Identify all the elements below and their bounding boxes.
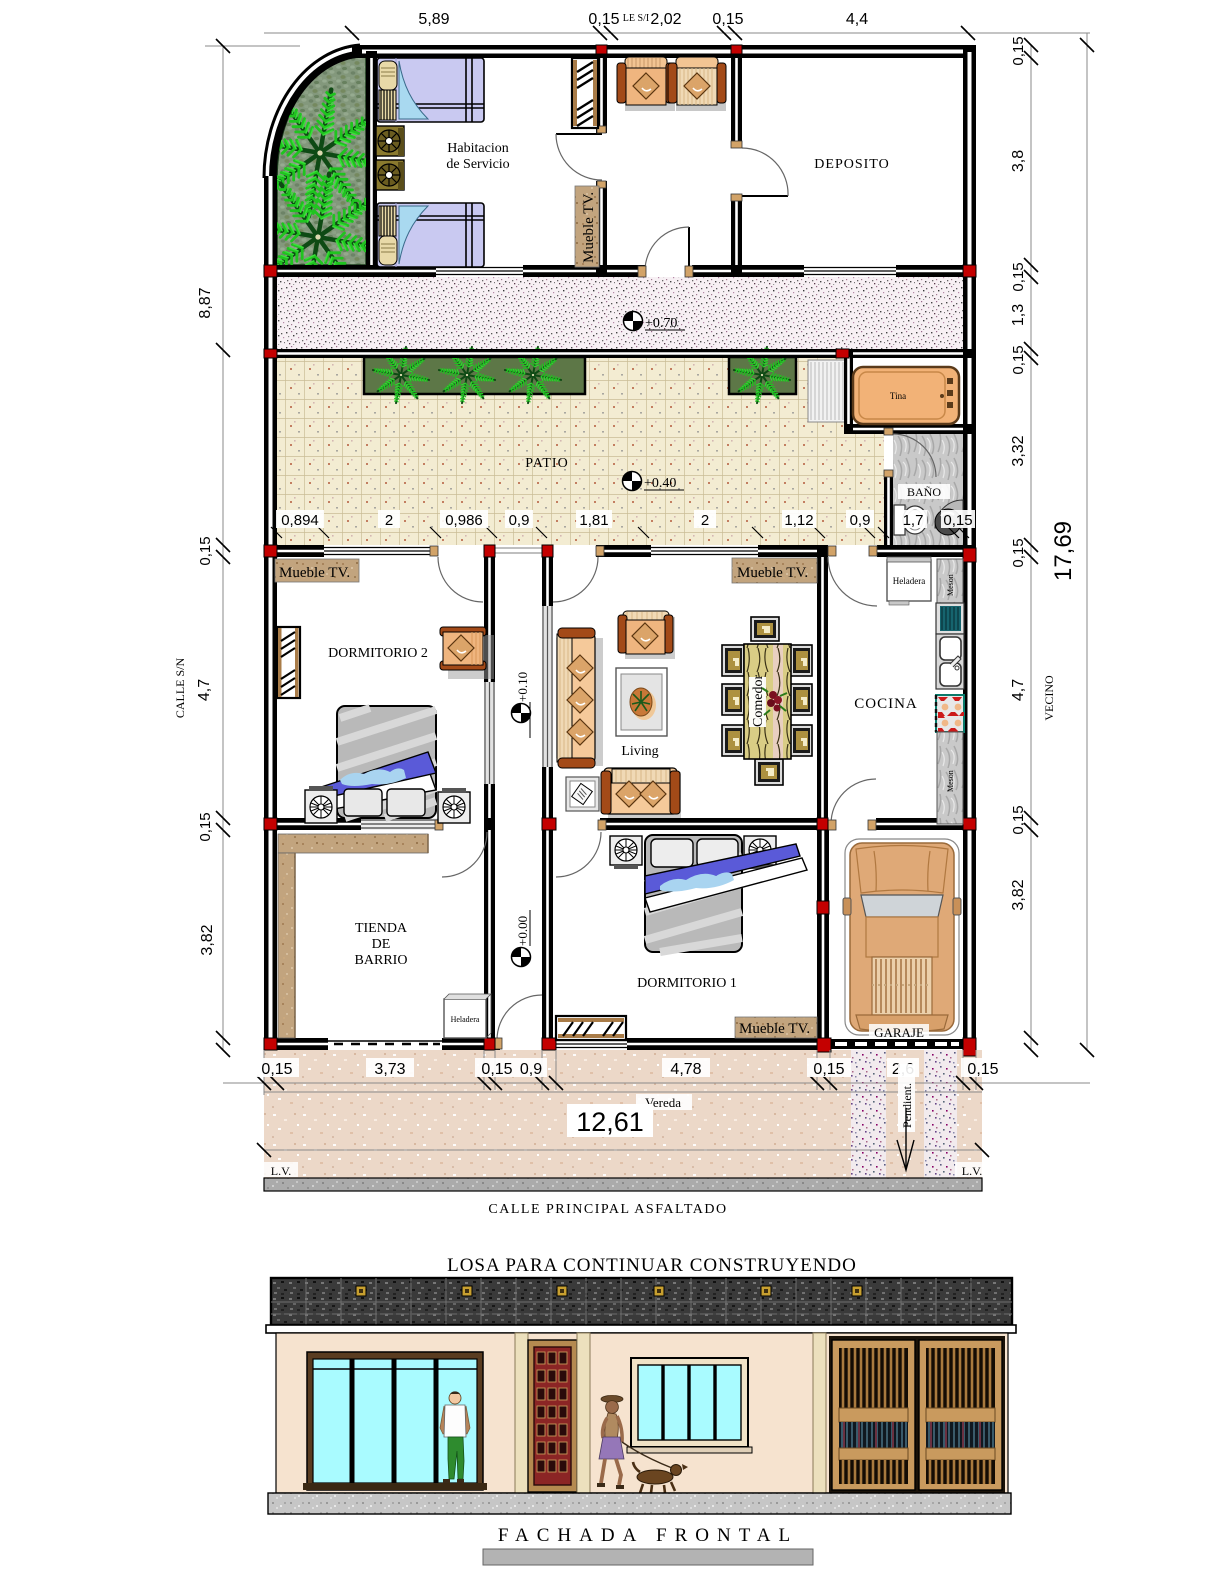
svg-text:0,15: 0,15 — [813, 1061, 844, 1078]
svg-text:Mueble TV.: Mueble TV. — [581, 192, 597, 263]
svg-text:Mueble TV.: Mueble TV. — [279, 565, 350, 581]
svg-text:de Servicio: de Servicio — [446, 157, 509, 172]
svg-text:Heladera: Heladera — [451, 1015, 480, 1024]
svg-text:1,3: 1,3 — [1010, 304, 1027, 326]
svg-text:PATIO: PATIO — [525, 456, 568, 471]
svg-text:12,61: 12,61 — [576, 1107, 644, 1137]
svg-text:0,15: 0,15 — [1010, 345, 1027, 374]
svg-text:1,12: 1,12 — [784, 512, 813, 529]
svg-text:0,9: 0,9 — [509, 512, 530, 529]
svg-text:3,8: 3,8 — [1010, 150, 1027, 172]
svg-text:+0.70: +0.70 — [645, 316, 677, 331]
svg-text:Tina: Tina — [890, 391, 906, 401]
svg-text:4,78: 4,78 — [670, 1061, 701, 1078]
svg-text:+0.00: +0.00 — [515, 916, 530, 946]
svg-text:L.V.: L.V. — [962, 1164, 982, 1178]
svg-text:0,15: 0,15 — [1010, 36, 1027, 65]
svg-text:DEPOSITO: DEPOSITO — [814, 157, 889, 172]
svg-text:Pendient.: Pendient. — [900, 1083, 914, 1128]
svg-text:4,7: 4,7 — [196, 679, 213, 701]
svg-text:LE S/I: LE S/I — [623, 13, 649, 24]
svg-text:GARAJE: GARAJE — [874, 1025, 924, 1040]
svg-text:COCINA: COCINA — [854, 696, 918, 712]
svg-text:5,89: 5,89 — [418, 11, 449, 28]
svg-text:1,7: 1,7 — [903, 512, 924, 529]
svg-text:3,82: 3,82 — [1010, 879, 1027, 910]
svg-text:FACHADA FRONTAL: FACHADA FRONTAL — [498, 1525, 798, 1546]
svg-text:0,15: 0,15 — [1010, 538, 1027, 567]
svg-text:DORMITORIO 2: DORMITORIO 2 — [328, 646, 428, 661]
svg-text:Living: Living — [621, 744, 658, 759]
svg-text:1,81: 1,81 — [579, 512, 608, 529]
svg-text:2: 2 — [701, 512, 709, 529]
svg-text:Meson: Meson — [946, 574, 955, 596]
svg-text:0,15: 0,15 — [261, 1061, 292, 1078]
svg-text:0,9: 0,9 — [850, 512, 871, 529]
svg-text:0,15: 0,15 — [588, 11, 619, 28]
svg-text:DORMITORIO 1: DORMITORIO 1 — [637, 976, 737, 991]
svg-text:BAÑO: BAÑO — [907, 485, 941, 499]
svg-text:0,15: 0,15 — [943, 512, 972, 529]
svg-text:0,15: 0,15 — [1010, 805, 1027, 834]
svg-text:L.V.: L.V. — [271, 1164, 291, 1178]
svg-text:LOSA PARA CONTINUAR CONSTRUYEN: LOSA PARA CONTINUAR CONSTRUYENDO — [447, 1255, 857, 1276]
svg-text:0,894: 0,894 — [281, 512, 319, 529]
svg-text:0,15: 0,15 — [1010, 262, 1027, 291]
svg-text:CALLE PRINCIPAL ASFALTADO: CALLE PRINCIPAL ASFALTADO — [488, 1202, 727, 1217]
svg-text:Mueble TV.: Mueble TV. — [737, 565, 808, 581]
svg-text:DE: DE — [372, 937, 391, 952]
svg-text:4,4: 4,4 — [846, 11, 868, 28]
svg-text:CALLE S/N: CALLE S/N — [173, 658, 187, 719]
svg-text:BARRIO: BARRIO — [355, 953, 408, 968]
svg-text:3,82: 3,82 — [199, 924, 216, 955]
svg-text:Heladera: Heladera — [893, 576, 925, 586]
svg-text:0,15: 0,15 — [481, 1061, 512, 1078]
svg-text:0,986: 0,986 — [445, 512, 483, 529]
svg-text:2,02: 2,02 — [650, 11, 681, 28]
svg-text:17,69: 17,69 — [1050, 521, 1077, 581]
svg-text:0,15: 0,15 — [967, 1061, 998, 1078]
svg-text:2: 2 — [385, 512, 393, 529]
svg-text:8,87: 8,87 — [197, 287, 214, 318]
svg-text:3,32: 3,32 — [1010, 435, 1027, 466]
svg-text:Comedor: Comedor — [751, 675, 766, 727]
svg-text:Mueble TV.: Mueble TV. — [739, 1021, 810, 1037]
svg-text:VECINO: VECINO — [1042, 675, 1056, 721]
svg-text:TIENDA: TIENDA — [355, 921, 408, 936]
svg-text:0,15: 0,15 — [197, 812, 214, 841]
svg-text:0,15: 0,15 — [197, 536, 214, 565]
svg-text:0,9: 0,9 — [520, 1061, 542, 1078]
svg-text:Meson: Meson — [946, 770, 955, 792]
svg-text:+0.10: +0.10 — [515, 672, 530, 702]
svg-text:4,7: 4,7 — [1010, 679, 1027, 701]
svg-text:Habitacion: Habitacion — [447, 141, 508, 156]
svg-text:0,15: 0,15 — [712, 11, 743, 28]
svg-text:3,73: 3,73 — [374, 1061, 405, 1078]
svg-text:+0.40: +0.40 — [644, 476, 676, 491]
